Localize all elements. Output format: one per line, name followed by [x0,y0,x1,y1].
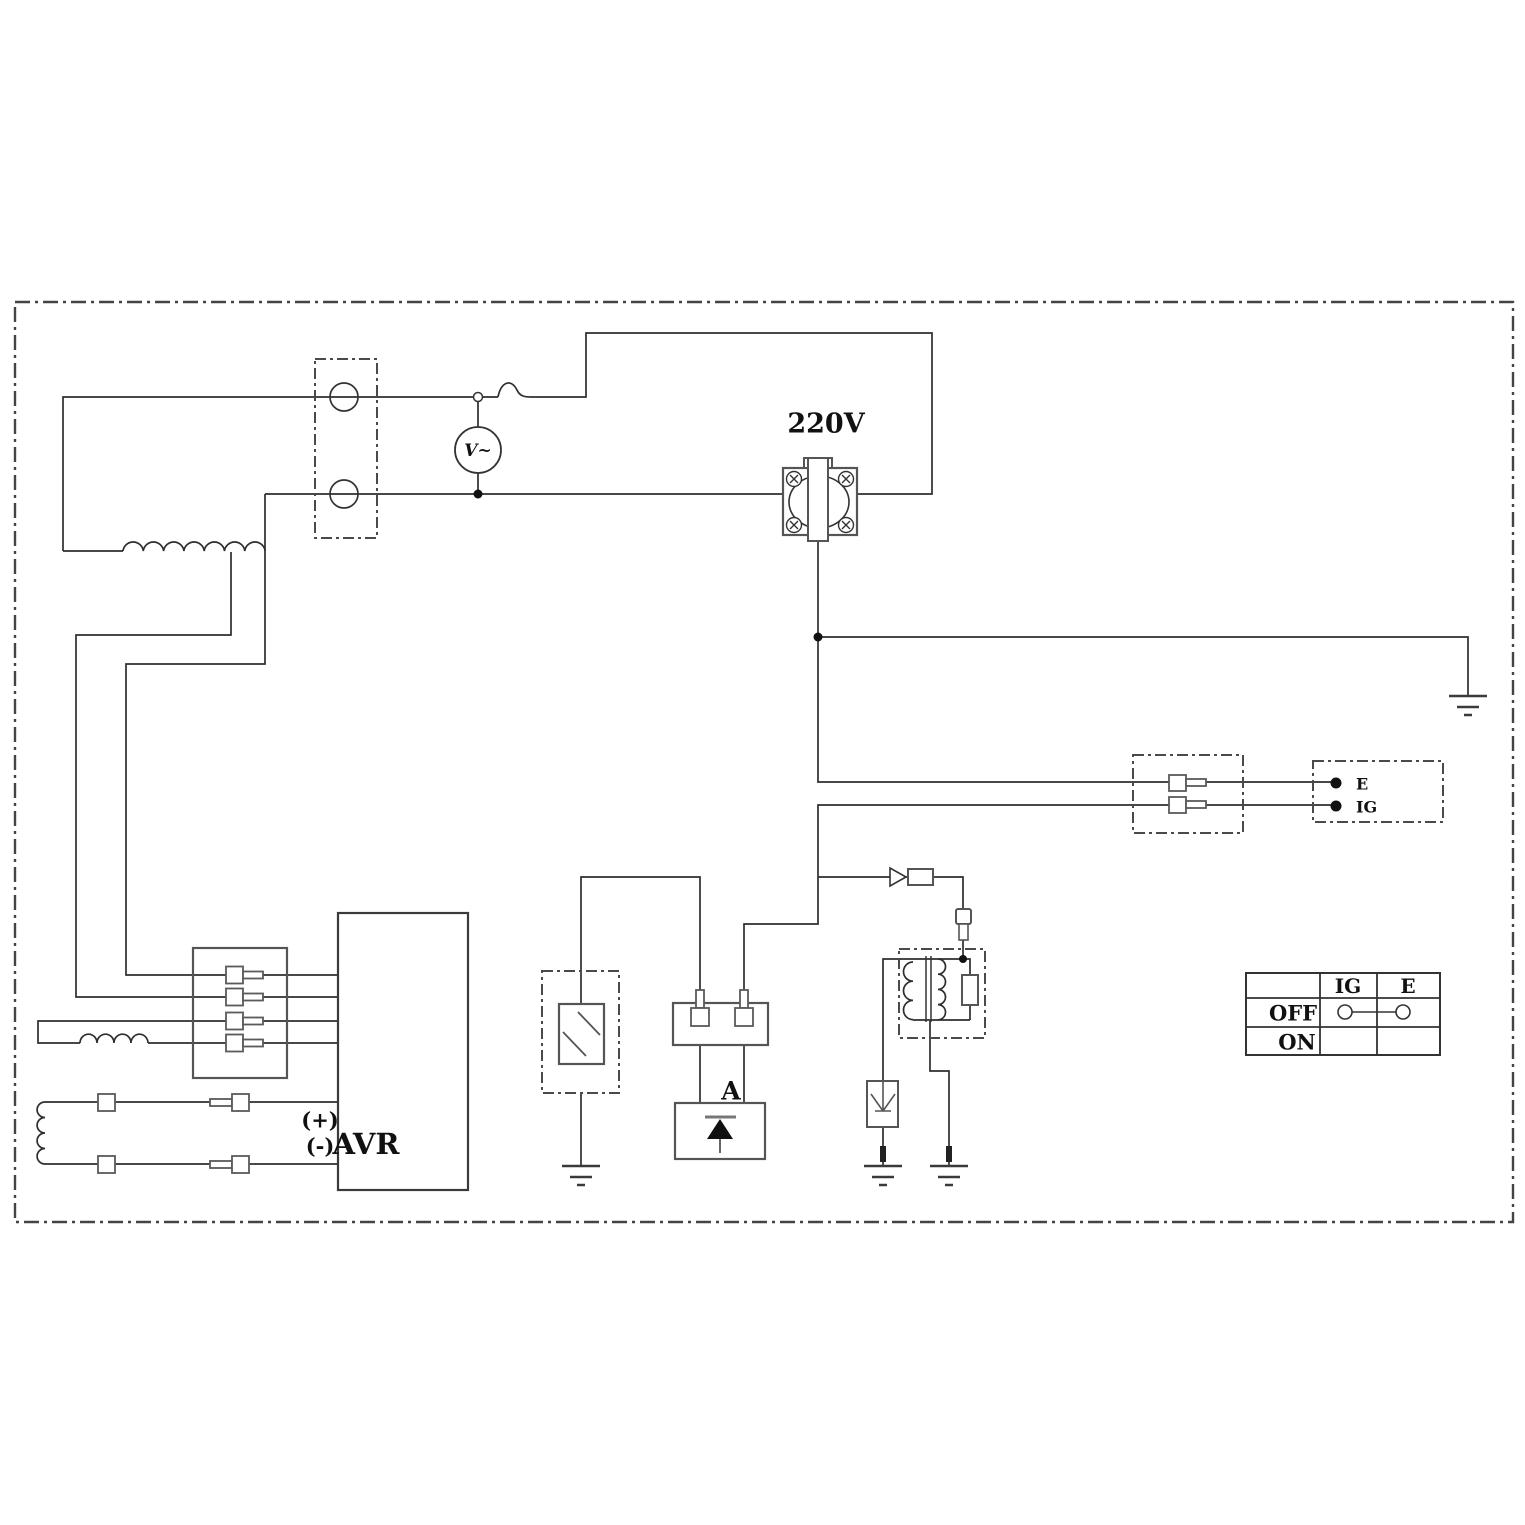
terminal-pin [1186,801,1206,808]
coil-junction-dot [959,955,967,963]
connector-cap [956,909,971,924]
inline-connector [956,909,971,940]
terminal-e-label: E [1356,775,1368,794]
table-header-ig: IG [1335,974,1361,998]
terminal-square [1169,775,1186,791]
diagram-canvas: V~ 220V E IG [0,0,1525,1525]
plug-cap-resistor [962,975,978,1005]
connector-square [735,1008,753,1026]
contact-circle-ig [1338,1005,1352,1019]
connector-square [691,1008,709,1026]
generator-wiring-diagram: V~ 220V E IG [0,0,1525,1525]
junction-dot [474,490,483,499]
receptacle-220v: 220V [783,409,866,542]
spark-unit [867,1081,898,1127]
terminal-e-dot [1331,778,1342,789]
terminal-ig-dot [1331,801,1342,812]
table-row-off: OFF [1269,1001,1317,1026]
plug-bar [808,458,828,541]
contact-circle-e [1396,1005,1410,1019]
switch-position-table: IG E OFF ON [1246,973,1440,1055]
connector-pin [696,990,704,1008]
test-point [474,393,483,402]
terminal-pin [1186,779,1206,786]
terminal-ig-label: IG [1356,798,1377,817]
table-header-e: E [1400,974,1415,998]
avr-label: AVR [332,1127,401,1161]
avr-minus-label: (-) [306,1134,335,1159]
wire-sleeve [946,1146,952,1162]
table-row-on: ON [1278,1030,1316,1055]
background [0,0,1525,1525]
diode-unit-label: A [720,1077,741,1106]
connector-sleeve [959,924,968,940]
receptacle-voltage-label: 220V [787,409,865,440]
wire-sleeve [880,1146,886,1162]
ground-junction-dot [814,633,823,642]
resistor-block [908,869,933,885]
terminal-square [1169,797,1186,813]
voltmeter: V~ [455,427,501,473]
avr-plus-label: (+) [301,1108,338,1133]
voltmeter-label: V~ [464,441,491,461]
connector-pin [740,990,748,1008]
